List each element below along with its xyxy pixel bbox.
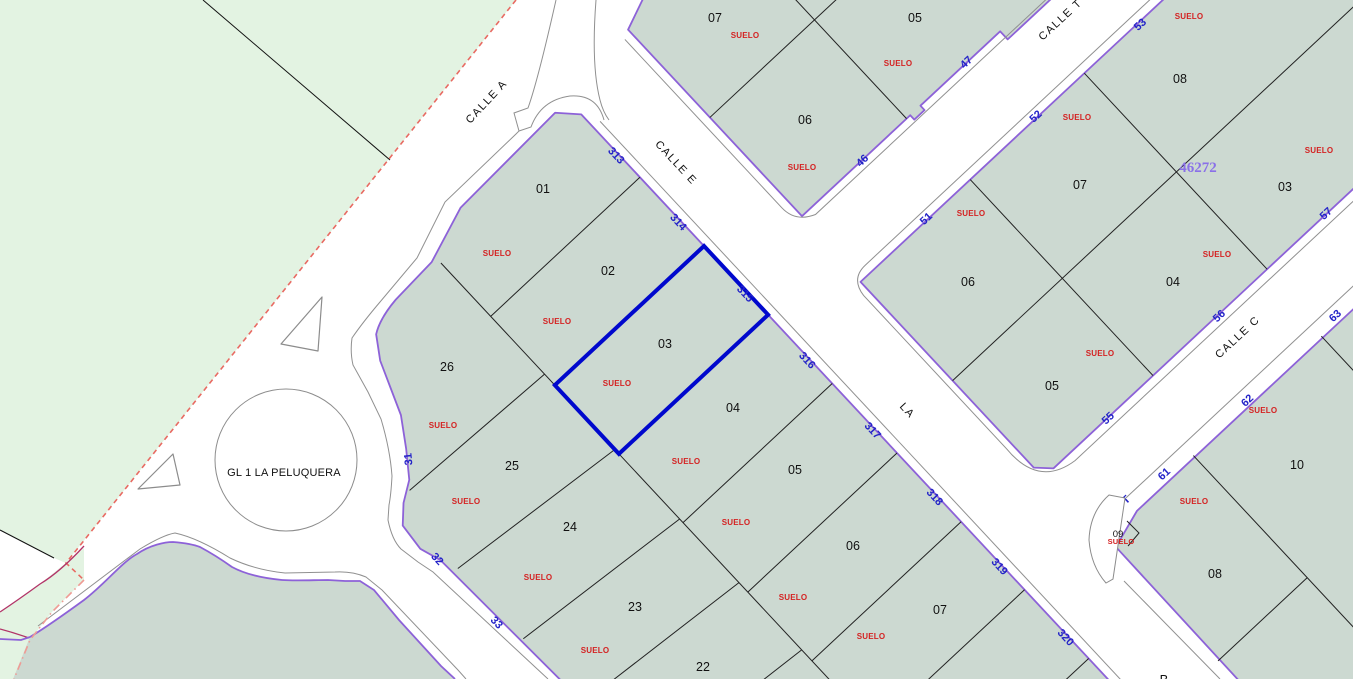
svg-text:25: 25	[505, 459, 519, 473]
svg-text:04: 04	[726, 401, 740, 415]
svg-text:SUELO: SUELO	[1305, 146, 1334, 155]
svg-text:SUELO: SUELO	[884, 59, 913, 68]
svg-text:SUELO: SUELO	[1175, 12, 1204, 21]
svg-text:SUELO: SUELO	[524, 573, 553, 582]
svg-text:SUELO: SUELO	[429, 421, 458, 430]
svg-text:SUELO: SUELO	[788, 163, 817, 172]
svg-text:05: 05	[908, 11, 922, 25]
svg-text:05: 05	[1045, 379, 1059, 393]
svg-text:SUELO: SUELO	[779, 593, 808, 602]
svg-text:SUELO: SUELO	[722, 518, 751, 527]
svg-text:31: 31	[402, 453, 415, 466]
svg-text:22: 22	[696, 660, 710, 674]
svg-text:SUELO: SUELO	[731, 31, 760, 40]
svg-text:07: 07	[933, 603, 947, 617]
svg-text:SUELO: SUELO	[1249, 406, 1278, 415]
svg-text:06: 06	[846, 539, 860, 553]
svg-text:07: 07	[1073, 178, 1087, 192]
svg-text:SUELO: SUELO	[857, 632, 886, 641]
svg-text:SUELO: SUELO	[1108, 537, 1135, 546]
svg-text:SUELO: SUELO	[483, 249, 512, 258]
svg-text:23: 23	[628, 600, 642, 614]
svg-text:46272: 46272	[1179, 160, 1217, 176]
svg-text:26: 26	[440, 360, 454, 374]
svg-text:03: 03	[658, 337, 672, 351]
svg-text:04: 04	[1166, 275, 1180, 289]
svg-text:SUELO: SUELO	[543, 317, 572, 326]
svg-text:06: 06	[961, 275, 975, 289]
svg-text:08: 08	[1208, 567, 1222, 581]
svg-text:SUELO: SUELO	[452, 497, 481, 506]
svg-text:08: 08	[1173, 72, 1187, 86]
svg-text:SUELO: SUELO	[1180, 497, 1209, 506]
svg-text:01: 01	[536, 182, 550, 196]
svg-text:SUELO: SUELO	[1086, 349, 1115, 358]
svg-text:03: 03	[1278, 180, 1292, 194]
svg-text:24: 24	[563, 520, 577, 534]
svg-text:02: 02	[601, 264, 615, 278]
svg-text:SUELO: SUELO	[672, 457, 701, 466]
svg-text:07: 07	[708, 11, 722, 25]
svg-text:SUELO: SUELO	[1203, 250, 1232, 259]
svg-text:06: 06	[798, 113, 812, 127]
svg-text:SUELO: SUELO	[581, 646, 610, 655]
svg-text:05: 05	[788, 463, 802, 477]
svg-text:SUELO: SUELO	[957, 209, 986, 218]
svg-text:10: 10	[1290, 458, 1304, 472]
svg-text:GL 1 LA PELUQUERA: GL 1 LA PELUQUERA	[227, 467, 341, 479]
svg-text:B: B	[1160, 672, 1169, 679]
svg-text:SUELO: SUELO	[1063, 113, 1092, 122]
svg-text:SUELO: SUELO	[603, 379, 632, 388]
